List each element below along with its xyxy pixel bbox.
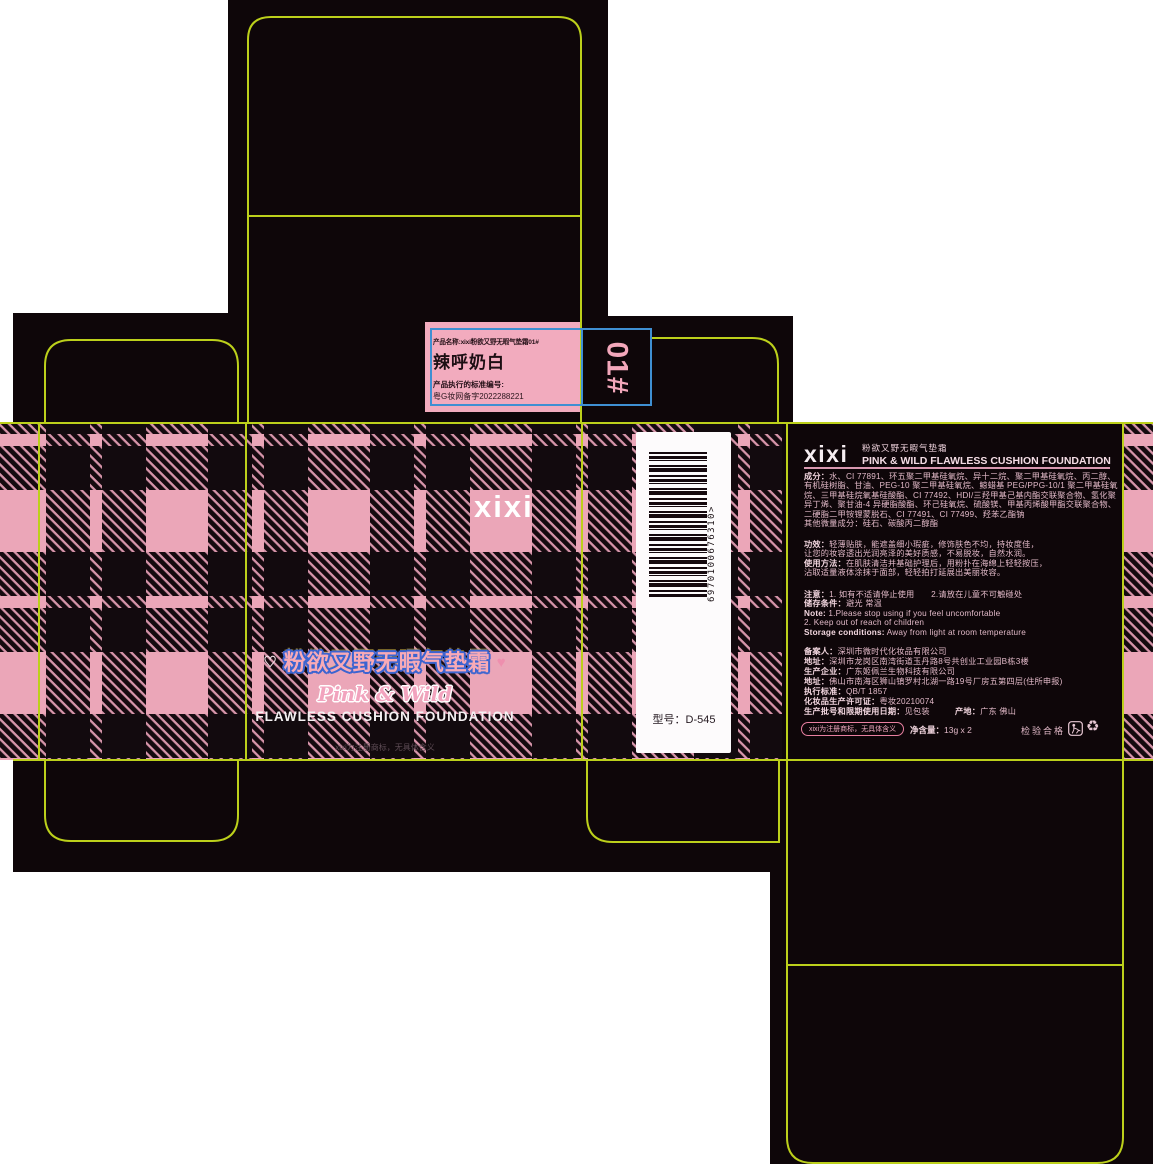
back-subtitle-cn: 粉欲又野无暇气垫霜: [862, 442, 1111, 454]
model-number: 型号：D-545: [640, 711, 728, 727]
front-title-en: FLAWLESS CUSHION FOUNDATION: [230, 709, 540, 724]
shade-name: 辣呼奶白: [433, 348, 505, 373]
trademark-pill: xixi为注册商标，无具体含义: [801, 722, 904, 736]
registration-text: 备案人：深圳市微时代化妆品有限公司地址：深圳市龙岗区南湾街道玉丹路8号共创业工业…: [804, 647, 1120, 717]
net-content: 净含量：13g x 2: [910, 724, 972, 736]
heart-outline-icon: ♡: [263, 654, 277, 671]
tidyman-icon: [1068, 721, 1083, 741]
product-name-line: 产品名称:xixi粉欲又野无暇气垫霜01#: [433, 336, 579, 346]
front-trademark-note: xixi为注册商标，无具体含义: [230, 742, 540, 753]
shade-code-mark: 01#: [585, 329, 649, 407]
standard-number-value: 粤G妆网备字2022288221: [433, 391, 524, 402]
bottom-flap-strip: [13, 760, 793, 872]
packaging-dieline-canvas: 产品名称:xixi粉欲又野无暇气垫霜01# 辣呼奶白 产品执行的标准编号: 粤G…: [0, 0, 1168, 1168]
front-title-cn: ♡粉欲又野无暇气垫霜♥: [230, 645, 540, 677]
recycle-icon: ♻: [1086, 717, 1099, 735]
back-divider-line: [804, 467, 1110, 469]
dieline-artwork: [0, 0, 1168, 1168]
front-title-script: Pink & Wild: [230, 682, 540, 706]
brand-logo-plaid: xixi: [474, 489, 534, 525]
brand-logo-back: xixi: [804, 441, 848, 468]
notice-text: 注意：1. 如有不适请停止使用 2.请放在儿童不可触碰处储存条件：避光 常温No…: [804, 590, 1120, 637]
back-subtitle-en: PINK & WILD FLAWLESS CUSHION FOUNDATION: [862, 455, 1111, 467]
bottom-lid-panel: [770, 760, 1153, 1164]
plaid-glue-strip: [1123, 423, 1153, 760]
heart-filled-icon: ♥: [497, 654, 507, 671]
back-subtitle-block: 粉欲又野无暇气垫霜 PINK & WILD FLAWLESS CUSHION F…: [862, 442, 1111, 467]
front-branding-block: ♡粉欲又野无暇气垫霜♥ Pink & Wild FLAWLESS CUSHION…: [230, 645, 540, 724]
efficacy-text: 功效：轻薄贴肤，能遮盖细小瑕疵，修饰肤色不均，持妆度佳，让您的妆容透出光润亮泽的…: [804, 540, 1120, 578]
standard-number-label: 产品执行的标准编号:: [433, 379, 504, 390]
barcode-number: 6970100676310>: [707, 450, 717, 602]
left-tuck-flap: [13, 313, 240, 423]
ingredients-text: 成分：水、CI 77891、环五聚二甲基硅氧烷、异十二烷、聚二甲基硅氧烷、丙二醇…: [804, 472, 1120, 528]
barcode-bars: [649, 452, 707, 598]
inspection-passed-label: 检验合格: [1021, 724, 1065, 737]
